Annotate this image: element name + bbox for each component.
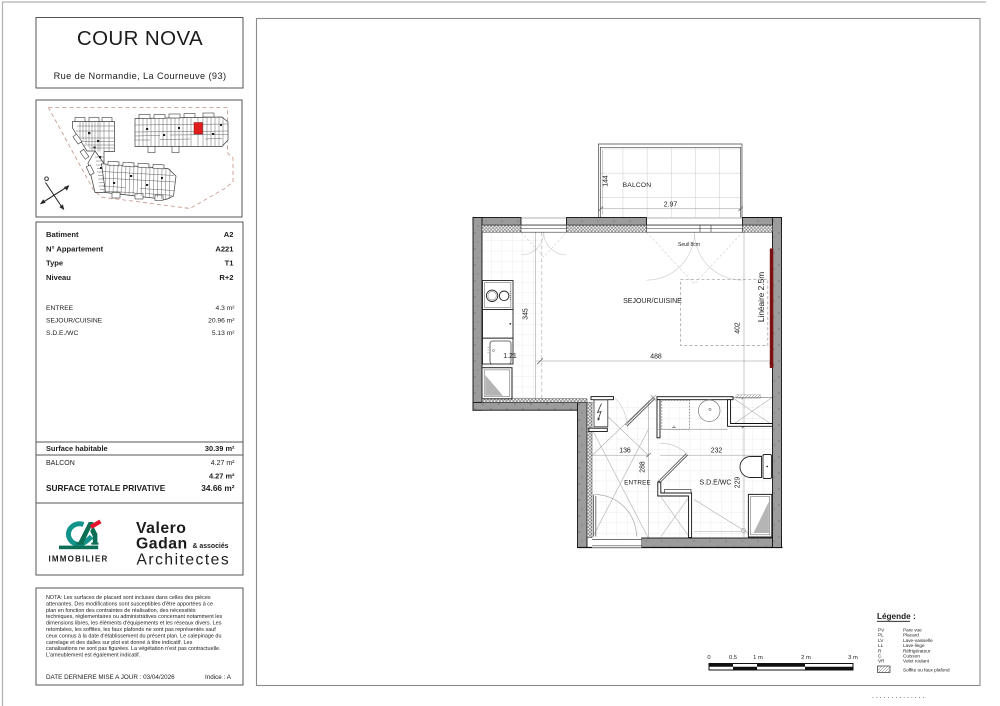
- svg-text:COUR NOVA: COUR NOVA: [77, 27, 203, 50]
- svg-text:O: O: [44, 176, 49, 183]
- svg-text:BALCON: BALCON: [623, 182, 652, 189]
- svg-text:1.21: 1.21: [503, 353, 517, 360]
- svg-text:NOTA: Les surfaces de placard: NOTA: Les surfaces de placard sont inclu…: [46, 595, 211, 601]
- svg-text:ENTREE: ENTREE: [624, 480, 651, 487]
- svg-text:canalisations ne sont pas figu: canalisations ne sont pas figurées. La v…: [46, 646, 221, 652]
- svg-text:20.96 m²: 20.96 m²: [208, 317, 235, 324]
- svg-text:A221: A221: [215, 244, 234, 253]
- svg-text:SURFACE TOTALE PRIVATIVE: SURFACE TOTALE PRIVATIVE: [46, 483, 166, 493]
- svg-text:Gadan: Gadan: [136, 536, 188, 553]
- svg-text:345: 345: [523, 308, 530, 320]
- svg-text:A2: A2: [224, 230, 234, 239]
- svg-text:Soffite ou faux plafond: Soffite ou faux plafond: [903, 668, 950, 673]
- svg-text:0.5: 0.5: [729, 655, 737, 661]
- svg-text:retombées, les soffites, les f: retombées, les soffites, les faux plafon…: [46, 627, 216, 633]
- svg-text:Type: Type: [46, 259, 63, 268]
- svg-text:SEJOUR/CUISINE: SEJOUR/CUISINE: [623, 298, 682, 305]
- svg-text:3 m: 3 m: [848, 655, 858, 661]
- svg-text:229: 229: [735, 477, 742, 489]
- svg-text:S.D.E./WC: S.D.E./WC: [46, 330, 78, 337]
- svg-text:& associés: & associés: [193, 543, 229, 550]
- svg-text:Valero: Valero: [136, 520, 186, 537]
- svg-text:S.D.E/WC: S.D.E/WC: [700, 480, 732, 487]
- svg-text:488: 488: [650, 354, 662, 361]
- svg-text:2.97: 2.97: [664, 202, 678, 209]
- svg-text:R+2: R+2: [219, 273, 233, 282]
- svg-text:4.27 m²: 4.27 m²: [209, 472, 235, 481]
- svg-text:N° Appartement: N° Appartement: [46, 244, 104, 253]
- svg-text:DATE DERNIERE MISE A JOUR : 03: DATE DERNIERE MISE A JOUR : 03/04/2026: [46, 674, 175, 681]
- svg-text:T1: T1: [225, 259, 235, 268]
- svg-text:Rue de Normandie, La Courneuve: Rue de Normandie, La Courneuve (93): [54, 71, 227, 81]
- svg-text:2 m: 2 m: [801, 655, 811, 661]
- svg-text:288: 288: [640, 461, 647, 473]
- svg-text:402: 402: [735, 322, 742, 334]
- svg-text:ENTREE: ENTREE: [46, 305, 74, 312]
- svg-text:Linéaire 2.5m: Linéaire 2.5m: [756, 272, 766, 322]
- svg-text:plan en fonction des contraint: plan en fonction des contraintes de réal…: [46, 608, 196, 614]
- svg-text:0: 0: [707, 655, 710, 661]
- svg-text:L'ameublement est également in: L'ameublement est également indicatif.: [46, 653, 141, 659]
- svg-text:34.66 m²: 34.66 m²: [201, 483, 234, 493]
- svg-text:IMMOBILIER: IMMOBILIER: [49, 554, 109, 563]
- svg-text:. . . . . . . . . . . . . .: . . . . . . . . . . . . . .: [872, 693, 925, 700]
- svg-text:Volet roulant: Volet roulant: [903, 659, 930, 664]
- svg-text:attenantes. Des modifications: attenantes. Des modifications sont susce…: [46, 601, 213, 607]
- svg-text:Légende :: Légende :: [877, 612, 916, 621]
- svg-text:Indice : A: Indice : A: [205, 674, 232, 681]
- svg-text:SEJOUR/CUISINE: SEJOUR/CUISINE: [46, 317, 103, 324]
- svg-text:ceux connus à la date d'établi: ceux connus à la date d'établissement du…: [46, 633, 221, 639]
- svg-text:144: 144: [603, 175, 610, 187]
- svg-text:5.13 m²: 5.13 m²: [212, 330, 235, 337]
- svg-text:techniques, réglementaires ou: techniques, réglementaires ou administra…: [46, 614, 222, 620]
- svg-text:Niveau: Niveau: [46, 273, 71, 282]
- svg-text:Batiment: Batiment: [46, 230, 79, 239]
- svg-text:136: 136: [619, 448, 631, 455]
- svg-text:4.3 m²: 4.3 m²: [216, 305, 236, 312]
- svg-text:4.27 m²: 4.27 m²: [211, 460, 235, 467]
- svg-text:Architectes: Architectes: [137, 552, 231, 569]
- svg-text:carrelage et des dalles sur pl: carrelage et des dalles sur plot est don…: [46, 640, 193, 646]
- svg-text:VR: VR: [878, 659, 885, 664]
- svg-text:232: 232: [711, 448, 723, 455]
- svg-text:BALCON: BALCON: [46, 460, 75, 467]
- svg-text:dimensions libres, les élément: dimensions libres, les éléments d'équipe…: [46, 621, 222, 627]
- svg-text:1 m: 1 m: [753, 655, 763, 661]
- svg-text:Seuil 8cm: Seuil 8cm: [678, 242, 700, 248]
- svg-text:30.39 m²: 30.39 m²: [205, 444, 235, 453]
- svg-text:Surface habitable: Surface habitable: [46, 444, 108, 453]
